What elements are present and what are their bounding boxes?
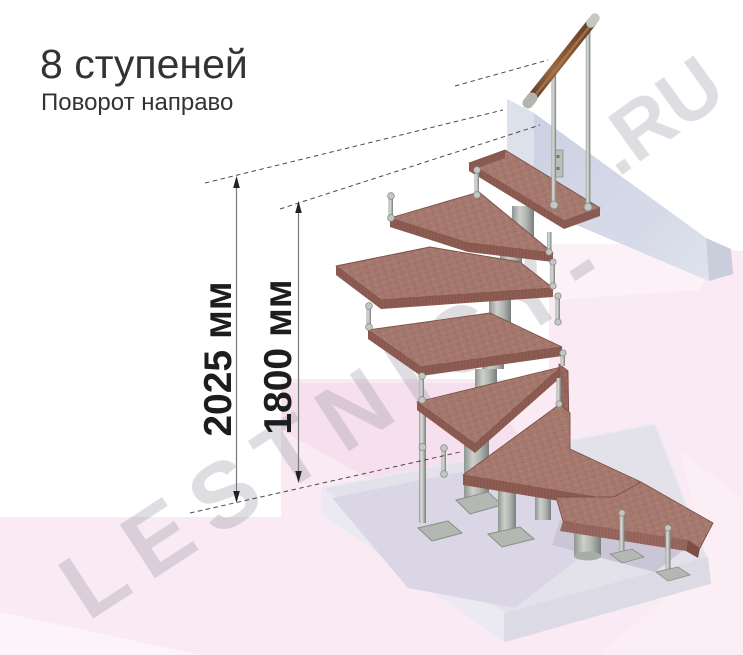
svg-text:Поворот направо: Поворот направо <box>41 89 233 116</box>
svg-text:2025 мм: 2025 мм <box>197 281 240 436</box>
svg-text:8 ступеней: 8 ступеней <box>40 41 248 87</box>
svg-text:1800 мм: 1800 мм <box>257 279 300 434</box>
